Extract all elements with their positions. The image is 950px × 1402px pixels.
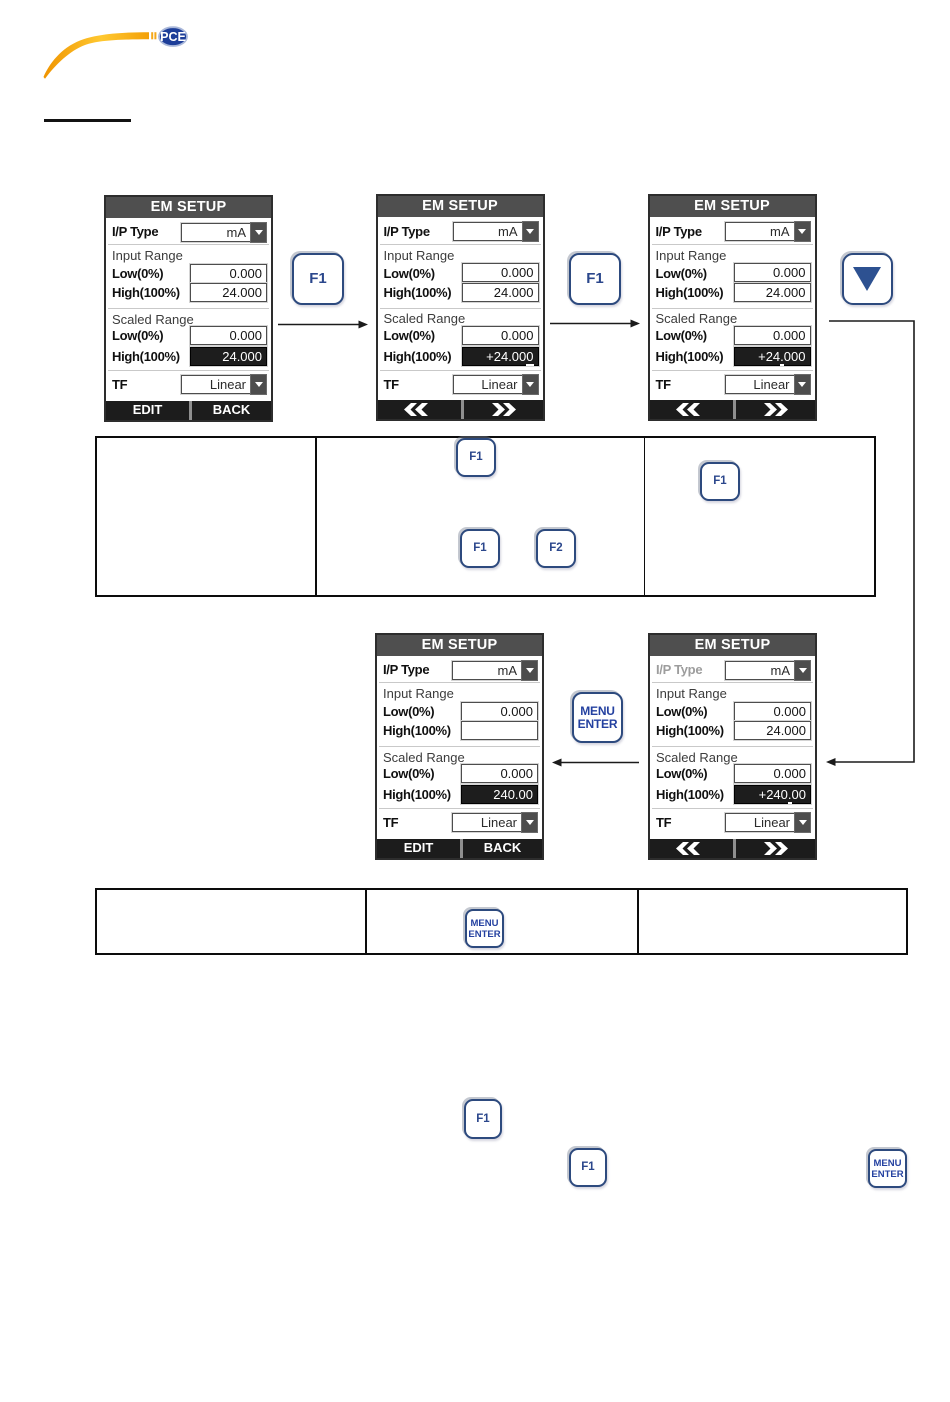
svg-text:PCE: PCE (160, 30, 186, 44)
